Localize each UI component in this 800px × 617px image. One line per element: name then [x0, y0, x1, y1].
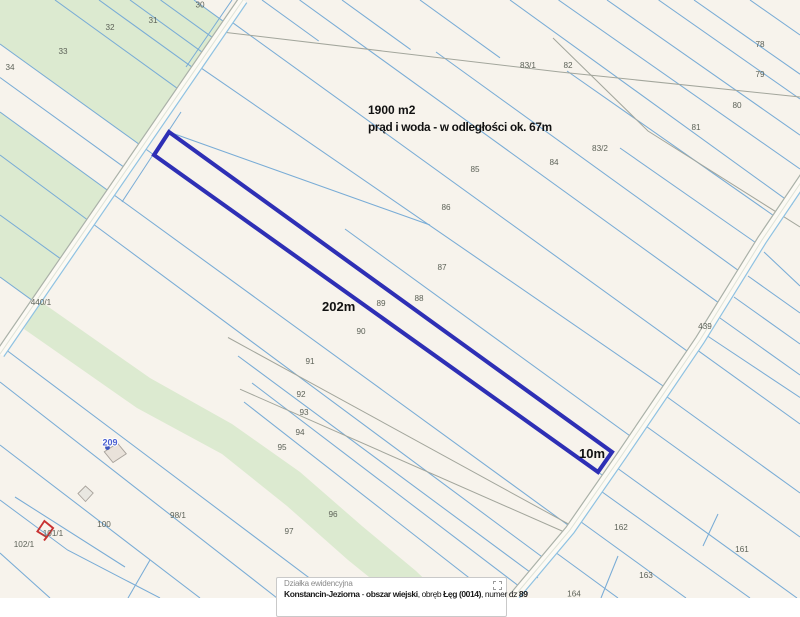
svg-text:31: 31 [148, 16, 158, 25]
svg-text:163: 163 [639, 571, 653, 580]
svg-text:1900 m2: 1900 m2 [368, 103, 416, 117]
svg-text:95: 95 [277, 443, 287, 452]
svg-text:80: 80 [732, 101, 742, 110]
svg-text:97: 97 [284, 527, 294, 536]
svg-text:82: 82 [563, 61, 573, 70]
svg-text:10m: 10m [579, 446, 605, 461]
svg-text:440/1: 440/1 [31, 298, 52, 307]
svg-text:85: 85 [470, 165, 480, 174]
svg-text:91: 91 [305, 357, 315, 366]
svg-text:93: 93 [299, 408, 309, 417]
svg-text:83/1: 83/1 [520, 61, 536, 70]
svg-text:102/1: 102/1 [14, 540, 35, 549]
svg-text:202m: 202m [322, 299, 355, 314]
svg-text:86: 86 [441, 203, 451, 212]
svg-text:164: 164 [567, 590, 581, 599]
svg-text:prąd i woda - w odległości ok.: prąd i woda - w odległości ok. 67m [368, 120, 552, 134]
svg-text:96: 96 [328, 510, 338, 519]
svg-text:161: 161 [735, 545, 749, 554]
svg-text:33: 33 [58, 47, 68, 56]
svg-text:98/1: 98/1 [170, 511, 186, 520]
svg-text:32: 32 [105, 23, 115, 32]
svg-text:81: 81 [691, 123, 701, 132]
svg-text:79: 79 [755, 70, 765, 79]
svg-text:162: 162 [614, 523, 628, 532]
svg-text:90: 90 [356, 327, 366, 336]
svg-text:84: 84 [549, 158, 559, 167]
svg-text:89: 89 [376, 299, 386, 308]
svg-text:83/2: 83/2 [592, 144, 608, 153]
svg-text:30: 30 [195, 1, 205, 10]
svg-text:94: 94 [295, 428, 305, 437]
svg-text:87: 87 [437, 263, 447, 272]
svg-text:439: 439 [698, 322, 712, 331]
svg-text:100: 100 [97, 520, 111, 529]
svg-text:78: 78 [755, 40, 765, 49]
svg-text:34: 34 [5, 63, 15, 72]
svg-text:209: 209 [102, 438, 117, 448]
svg-text:101/1: 101/1 [43, 529, 64, 538]
svg-text:92: 92 [296, 390, 306, 399]
svg-text:88: 88 [414, 294, 424, 303]
